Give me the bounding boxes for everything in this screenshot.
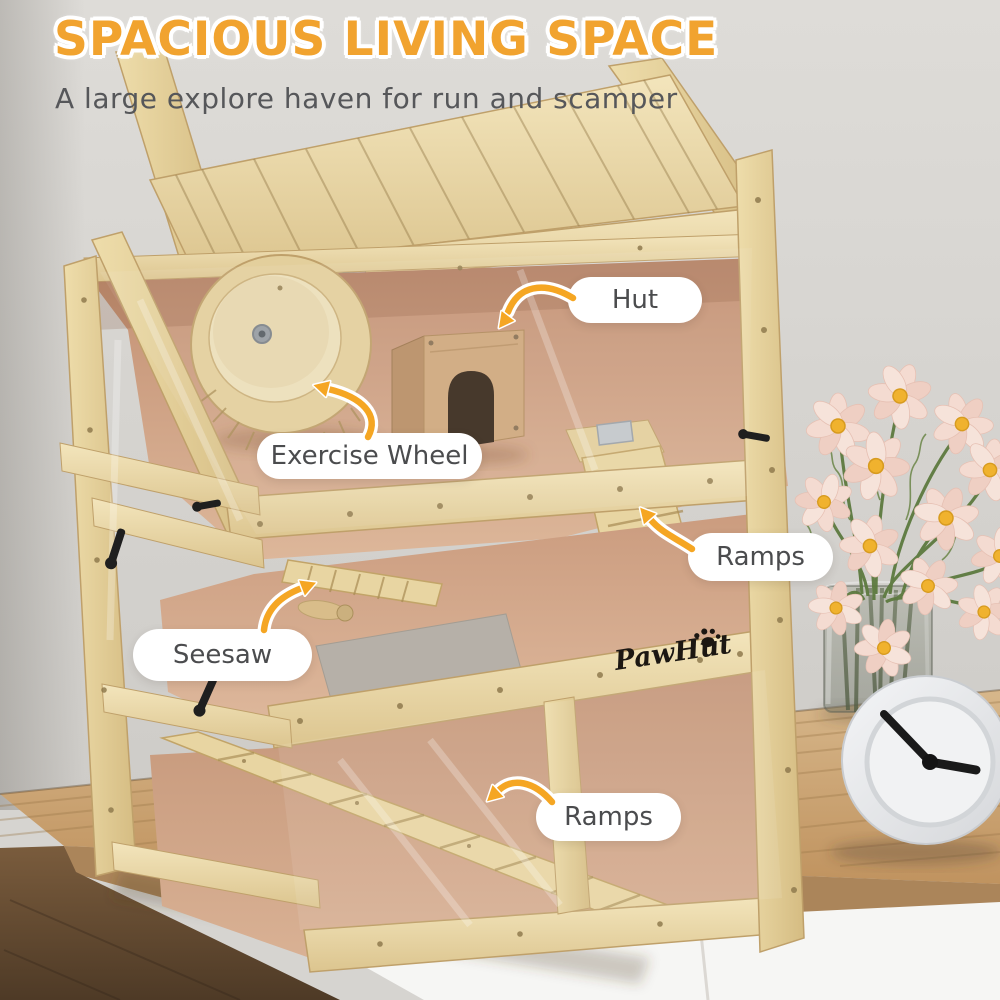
- label-ramps-lower: Ramps: [536, 793, 681, 841]
- page-subtitle: A large explore haven for run and scampe…: [55, 82, 678, 115]
- label-exercise-wheel-text: Exercise Wheel: [271, 441, 469, 471]
- label-seesaw: Seesaw: [133, 629, 312, 681]
- label-ramps-lower-text: Ramps: [564, 802, 653, 832]
- page-title: SPACIOUS LIVING SPACE: [54, 12, 718, 67]
- clock-center: [922, 754, 938, 770]
- label-ramps-upper: Ramps: [688, 533, 833, 581]
- label-hut-text: Hut: [612, 285, 658, 315]
- label-exercise-wheel: Exercise Wheel: [257, 433, 482, 479]
- label-hut: Hut: [568, 277, 702, 323]
- product-hero-image: PawHut: [0, 0, 1000, 1000]
- photo-scene: PawHut: [0, 0, 1000, 1000]
- label-ramps-upper-text: Ramps: [716, 542, 805, 572]
- label-seesaw-text: Seesaw: [173, 640, 272, 670]
